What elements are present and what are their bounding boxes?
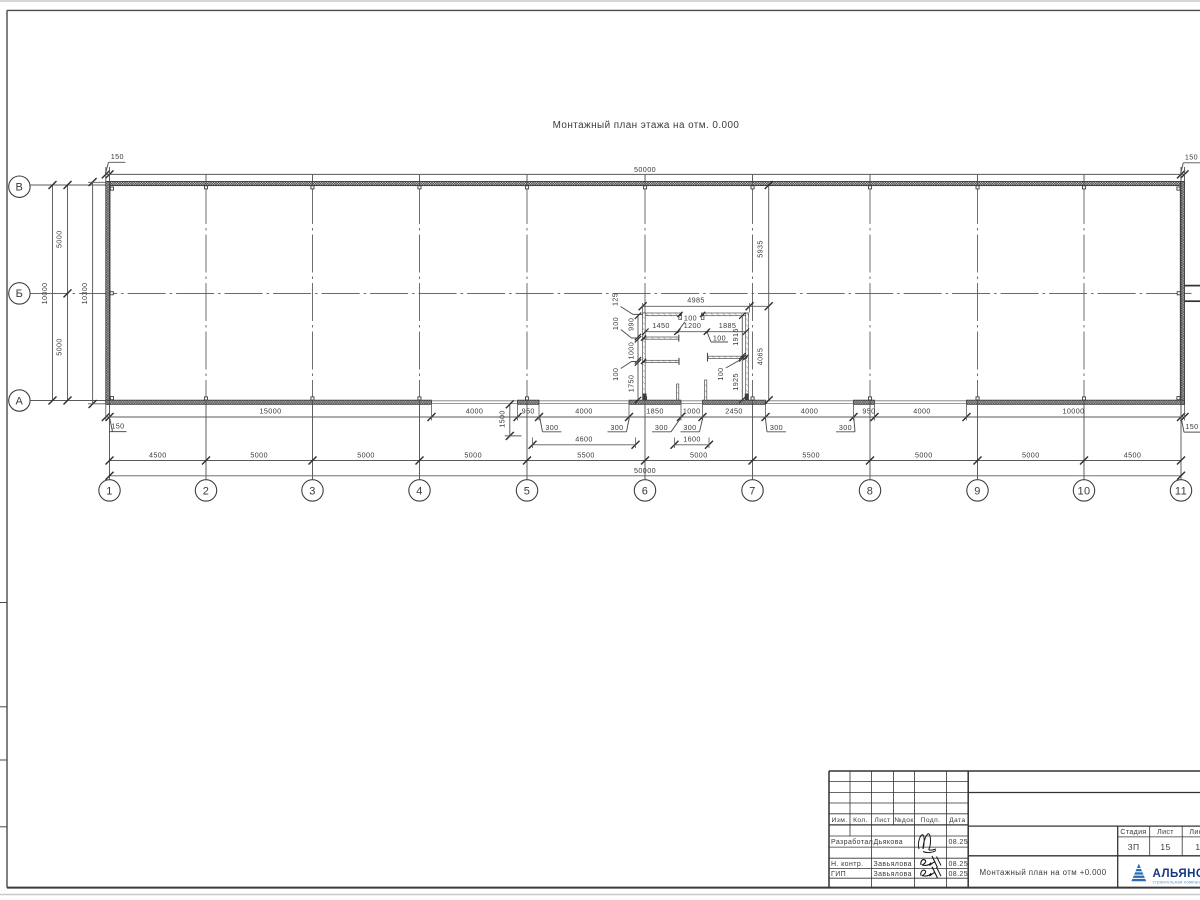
svg-text:4000: 4000 — [575, 407, 593, 416]
svg-text:50000: 50000 — [634, 466, 656, 475]
svg-text:Подп.: Подп. — [921, 817, 941, 824]
svg-text:100: 100 — [716, 367, 725, 380]
svg-text:ЗП: ЗП — [1127, 842, 1139, 852]
svg-text:10000: 10000 — [1063, 407, 1085, 416]
svg-text:ГИП: ГИП — [831, 871, 846, 878]
svg-text:4985: 4985 — [687, 296, 705, 305]
svg-text:1600: 1600 — [683, 434, 701, 443]
svg-text:Н. контр.: Н. контр. — [831, 861, 864, 868]
svg-text:2: 2 — [203, 485, 210, 497]
svg-text:3: 3 — [309, 485, 316, 497]
svg-text:2450: 2450 — [725, 407, 743, 416]
svg-text:10300: 10300 — [80, 282, 89, 304]
svg-text:4500: 4500 — [1124, 451, 1142, 460]
svg-text:100: 100 — [611, 368, 620, 381]
svg-text:7: 7 — [749, 485, 756, 497]
svg-text:50000: 50000 — [634, 165, 656, 174]
svg-text:Дата: Дата — [949, 817, 965, 824]
svg-text:Завьялова: Завьялова — [874, 861, 912, 868]
svg-text:4000: 4000 — [466, 407, 484, 416]
svg-text:11: 11 — [1175, 485, 1187, 497]
svg-text:6: 6 — [642, 485, 649, 497]
svg-text:1: 1 — [106, 485, 113, 497]
svg-text:1500: 1500 — [497, 410, 506, 428]
svg-text:1000: 1000 — [683, 407, 701, 416]
svg-text:Монтажный план этажа на отм. 0: Монтажный план этажа на отм. 0.000 — [553, 120, 740, 131]
svg-text:Разработал: Разработал — [831, 838, 873, 846]
svg-text:150: 150 — [1185, 422, 1198, 431]
svg-text:10000: 10000 — [40, 282, 49, 304]
svg-text:950: 950 — [862, 407, 875, 416]
svg-text:100: 100 — [713, 334, 726, 343]
svg-text:Дьякова: Дьякова — [874, 839, 904, 846]
svg-text:5000: 5000 — [250, 451, 268, 460]
svg-text:15: 15 — [1160, 842, 1170, 852]
svg-text:150: 150 — [111, 152, 124, 161]
svg-text:300: 300 — [770, 423, 783, 432]
svg-text:1: 1 — [1195, 842, 1200, 852]
svg-text:Завьялова: Завьялова — [874, 871, 912, 878]
svg-text:5000: 5000 — [1022, 451, 1040, 460]
svg-text:300: 300 — [545, 423, 558, 432]
svg-text:950: 950 — [522, 407, 535, 416]
svg-text:Стадия: Стадия — [1120, 829, 1146, 836]
svg-text:5000: 5000 — [690, 451, 708, 460]
svg-text:4000: 4000 — [801, 407, 819, 416]
svg-text:Кол.: Кол. — [853, 817, 868, 824]
svg-text:150: 150 — [1185, 153, 1198, 162]
svg-text:990: 990 — [627, 318, 636, 331]
svg-text:4: 4 — [416, 485, 423, 497]
svg-text:9: 9 — [974, 485, 981, 497]
svg-text:5935: 5935 — [755, 240, 764, 258]
svg-text:100: 100 — [684, 314, 697, 323]
svg-text:1915: 1915 — [731, 328, 740, 346]
svg-text:300: 300 — [610, 423, 623, 432]
svg-text:5000: 5000 — [55, 230, 64, 248]
svg-text:1750: 1750 — [627, 375, 636, 393]
svg-text:08.25: 08.25 — [949, 861, 969, 868]
svg-text:125: 125 — [610, 293, 619, 306]
svg-text:4600: 4600 — [575, 434, 593, 443]
svg-text:15000: 15000 — [260, 407, 282, 416]
svg-text:100: 100 — [611, 317, 620, 330]
svg-text:4500: 4500 — [149, 451, 167, 460]
svg-text:АЛЬЯНС: АЛЬЯНС — [1153, 868, 1200, 880]
svg-text:5500: 5500 — [577, 451, 595, 460]
svg-text:Б: Б — [16, 288, 24, 300]
svg-text:300: 300 — [655, 423, 668, 432]
svg-text:строительная компания: строительная компания — [1153, 880, 1200, 885]
svg-text:Лист: Лист — [1157, 829, 1174, 836]
svg-text:1850: 1850 — [646, 407, 664, 416]
svg-text:300: 300 — [683, 423, 696, 432]
svg-text:1925: 1925 — [731, 373, 740, 391]
svg-text:10: 10 — [1077, 485, 1090, 497]
svg-text:5: 5 — [524, 485, 531, 497]
svg-text:Монтажный план на отм +0.000: Монтажный план на отм +0.000 — [980, 868, 1107, 877]
svg-text:В: В — [16, 182, 24, 194]
svg-text:150: 150 — [111, 421, 124, 430]
svg-text:Лис: Лис — [1189, 829, 1200, 836]
svg-text:Изм.: Изм. — [832, 817, 848, 824]
svg-text:5000: 5000 — [55, 338, 64, 356]
svg-text:5500: 5500 — [802, 451, 820, 460]
svg-text:08.25: 08.25 — [949, 839, 969, 846]
svg-text:№док: №док — [894, 817, 913, 824]
svg-text:5000: 5000 — [357, 451, 375, 460]
svg-text:8: 8 — [867, 485, 874, 497]
svg-text:1450: 1450 — [652, 321, 670, 330]
svg-text:А: А — [16, 395, 24, 407]
svg-text:5000: 5000 — [464, 451, 482, 460]
svg-text:1000: 1000 — [627, 342, 636, 360]
svg-text:300: 300 — [839, 423, 852, 432]
svg-text:4065: 4065 — [755, 348, 764, 366]
svg-text:08.25: 08.25 — [949, 871, 969, 878]
svg-text:Лист: Лист — [874, 817, 890, 824]
svg-text:5000: 5000 — [915, 451, 933, 460]
svg-text:4000: 4000 — [913, 407, 931, 416]
